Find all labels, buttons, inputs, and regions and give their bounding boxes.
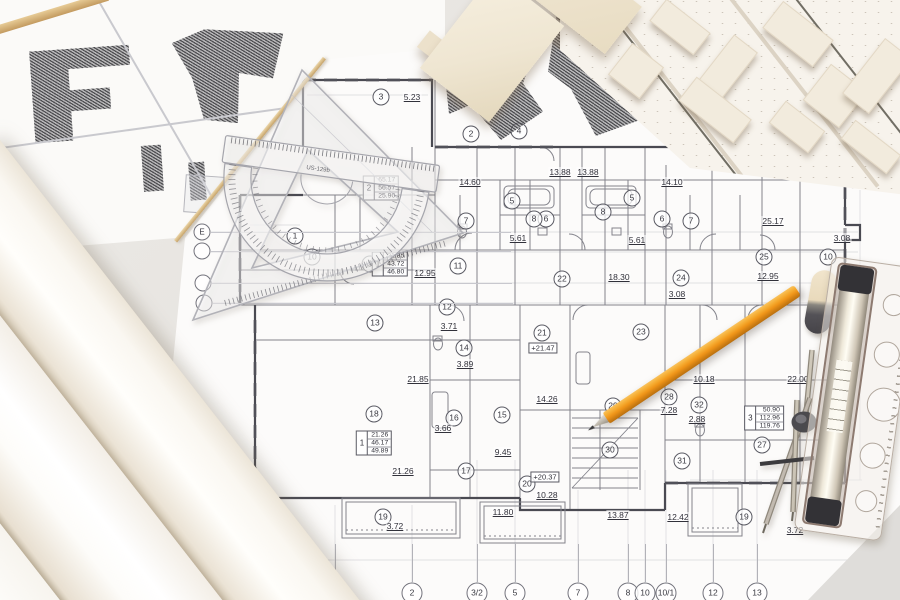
ruler-hole	[858, 441, 887, 470]
roller-end-cap-top	[837, 264, 874, 294]
site-building-bar	[141, 145, 164, 192]
pencil-lead-tip	[587, 425, 595, 432]
photo-scene: 3241556677889101112131415161718191920212…	[0, 0, 900, 600]
site-building-cluster	[171, 24, 289, 128]
ruler-hole	[881, 293, 900, 318]
site-building-f-shape	[29, 45, 135, 144]
ruler-hole	[872, 340, 900, 369]
roller-end-cap-bottom	[805, 496, 842, 526]
ruler-hole	[854, 489, 879, 514]
